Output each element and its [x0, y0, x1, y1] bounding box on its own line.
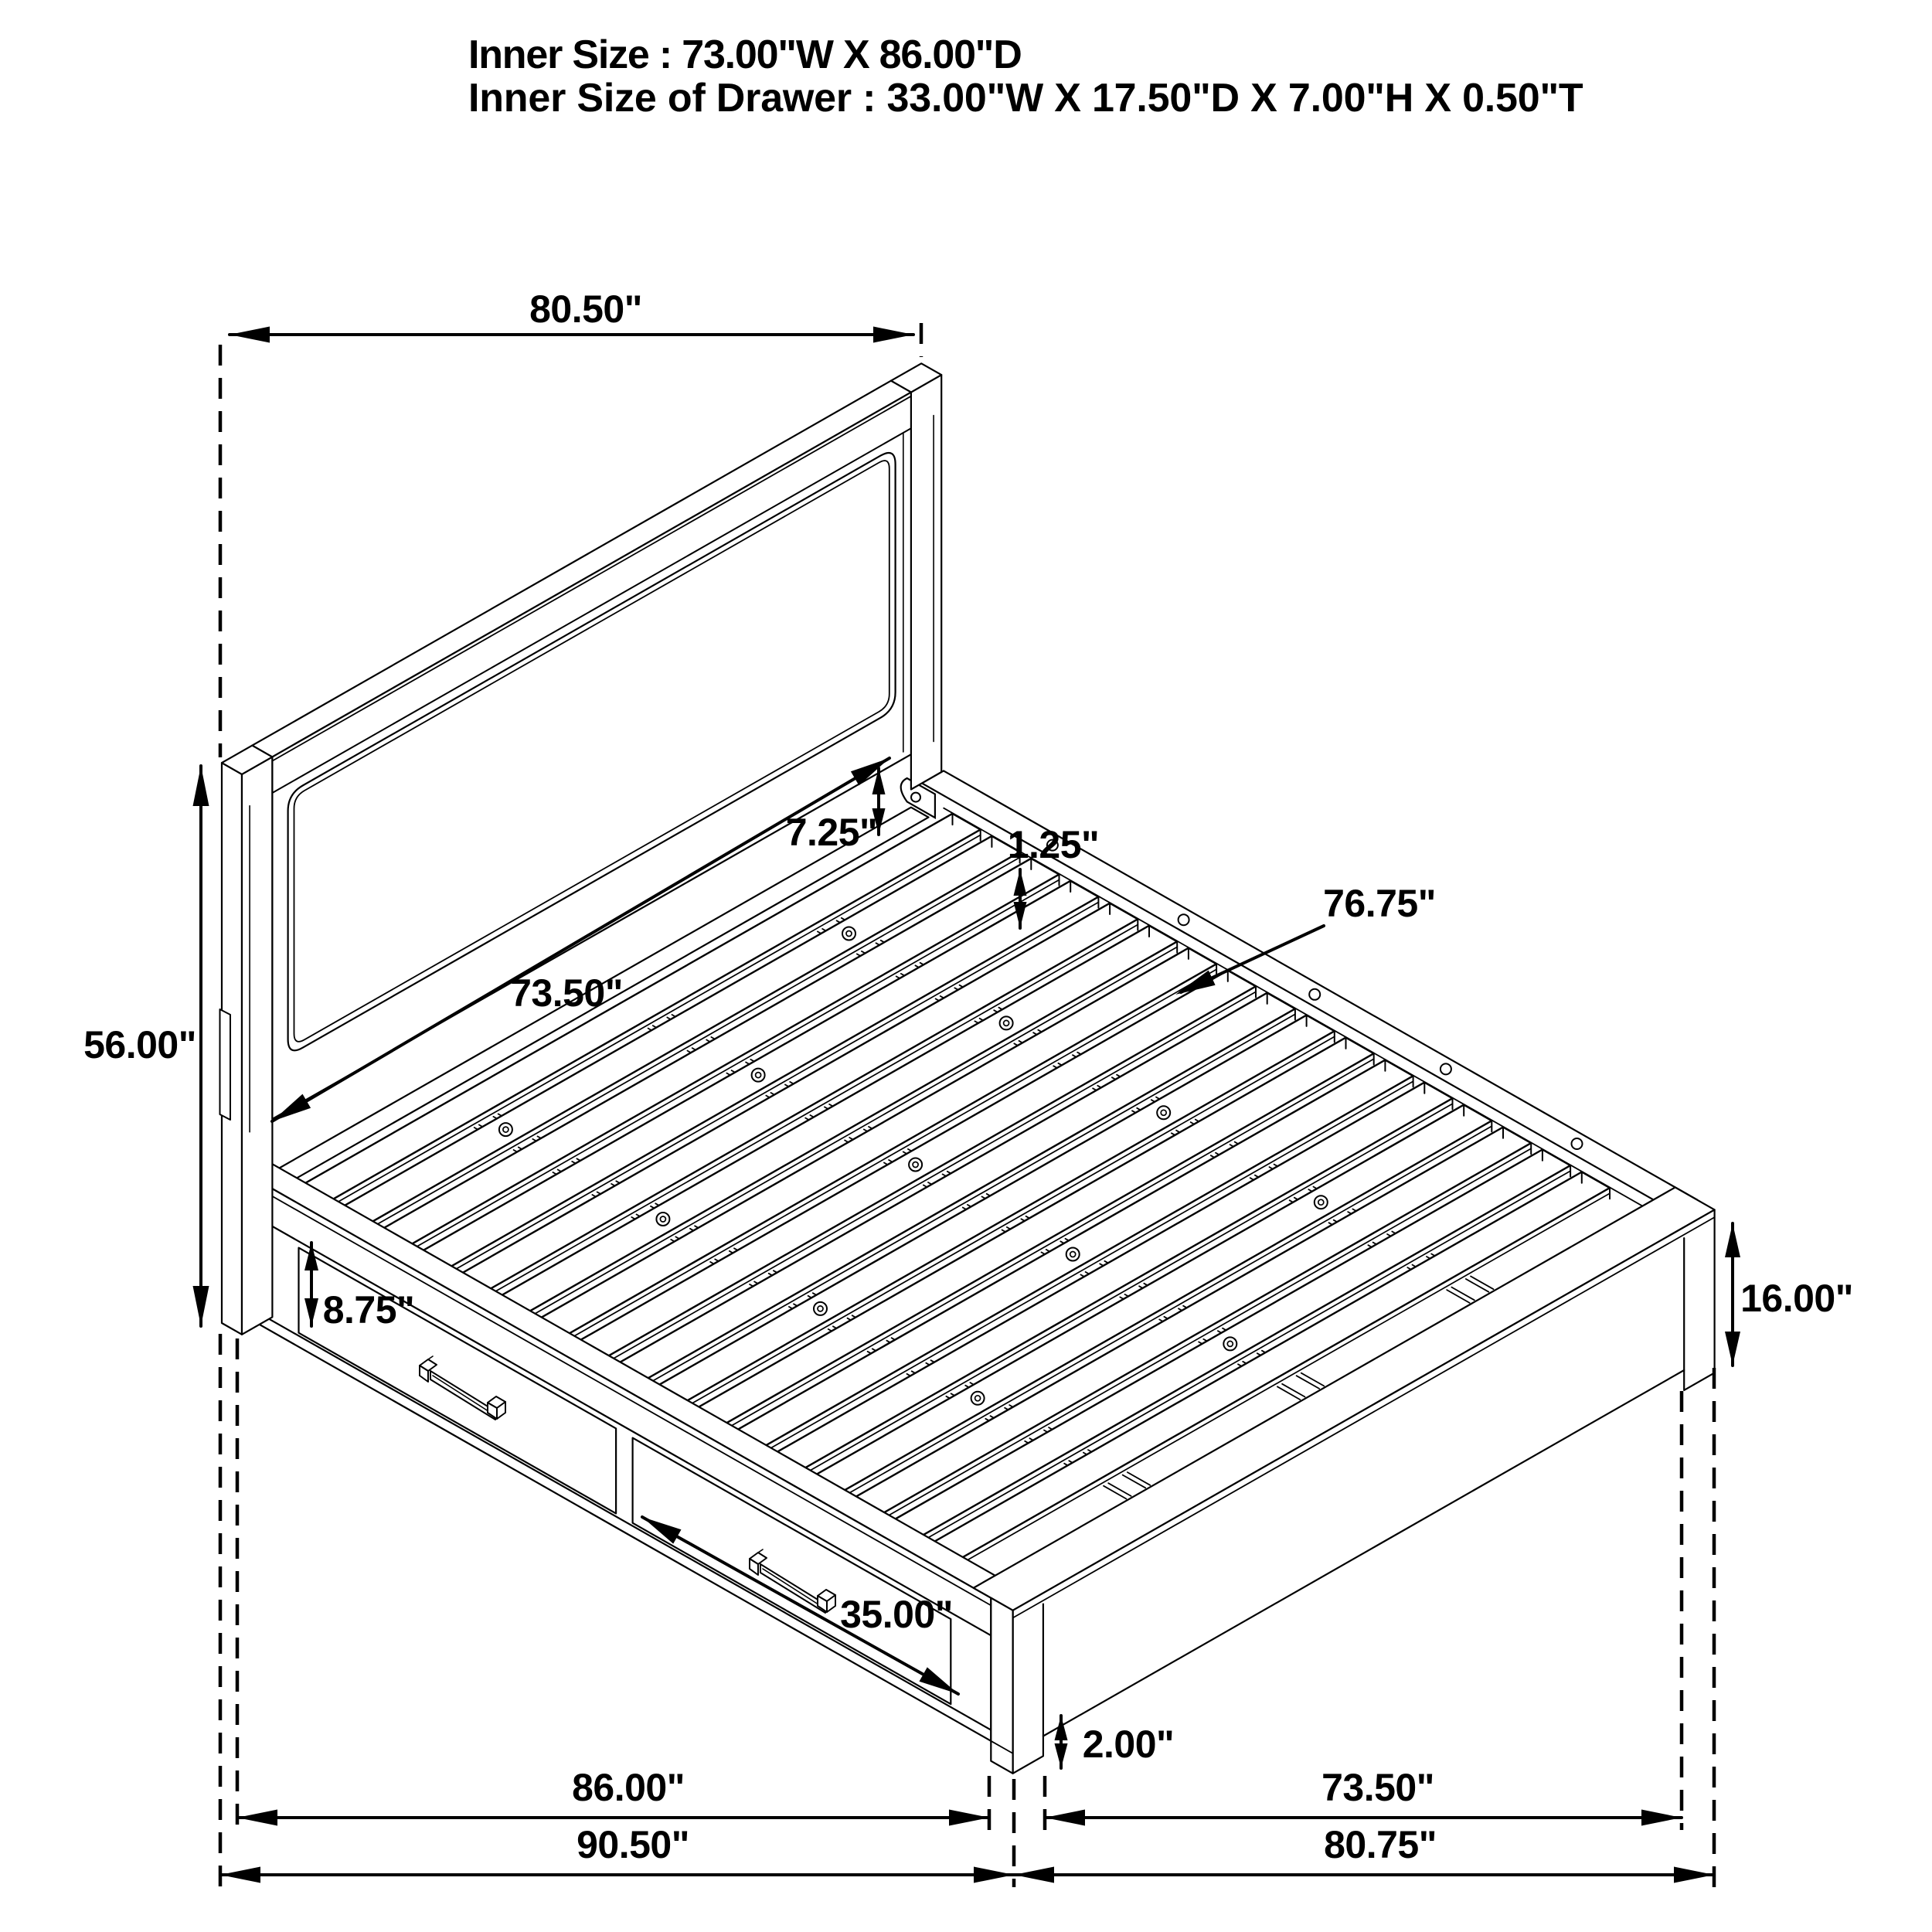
svg-text:8.75": 8.75" [323, 1288, 415, 1332]
svg-text:1.25": 1.25" [1008, 823, 1100, 866]
svg-text:90.50": 90.50" [577, 1823, 689, 1866]
svg-text:73.50": 73.50" [1321, 1766, 1434, 1809]
svg-text:86.00": 86.00" [572, 1766, 685, 1809]
svg-text:2.00": 2.00" [1083, 1723, 1175, 1766]
svg-text:Inner Size of Drawer : 33.00"W: Inner Size of Drawer : 33.00"W X 17.50"D… [468, 76, 1583, 121]
svg-text:56.00": 56.00" [83, 1023, 196, 1066]
svg-text:80.50": 80.50" [529, 287, 642, 331]
svg-text:80.75": 80.75" [1324, 1823, 1437, 1866]
svg-text:73.50": 73.50" [510, 971, 623, 1015]
svg-text:Inner Size : 73.00"W X 86.00"D: Inner Size : 73.00"W X 86.00"D [468, 32, 1022, 77]
svg-text:35.00": 35.00" [840, 1593, 953, 1636]
svg-text:76.75": 76.75" [1323, 882, 1436, 925]
svg-text:7.25": 7.25" [786, 811, 878, 854]
svg-text:16.00": 16.00" [1740, 1277, 1853, 1320]
